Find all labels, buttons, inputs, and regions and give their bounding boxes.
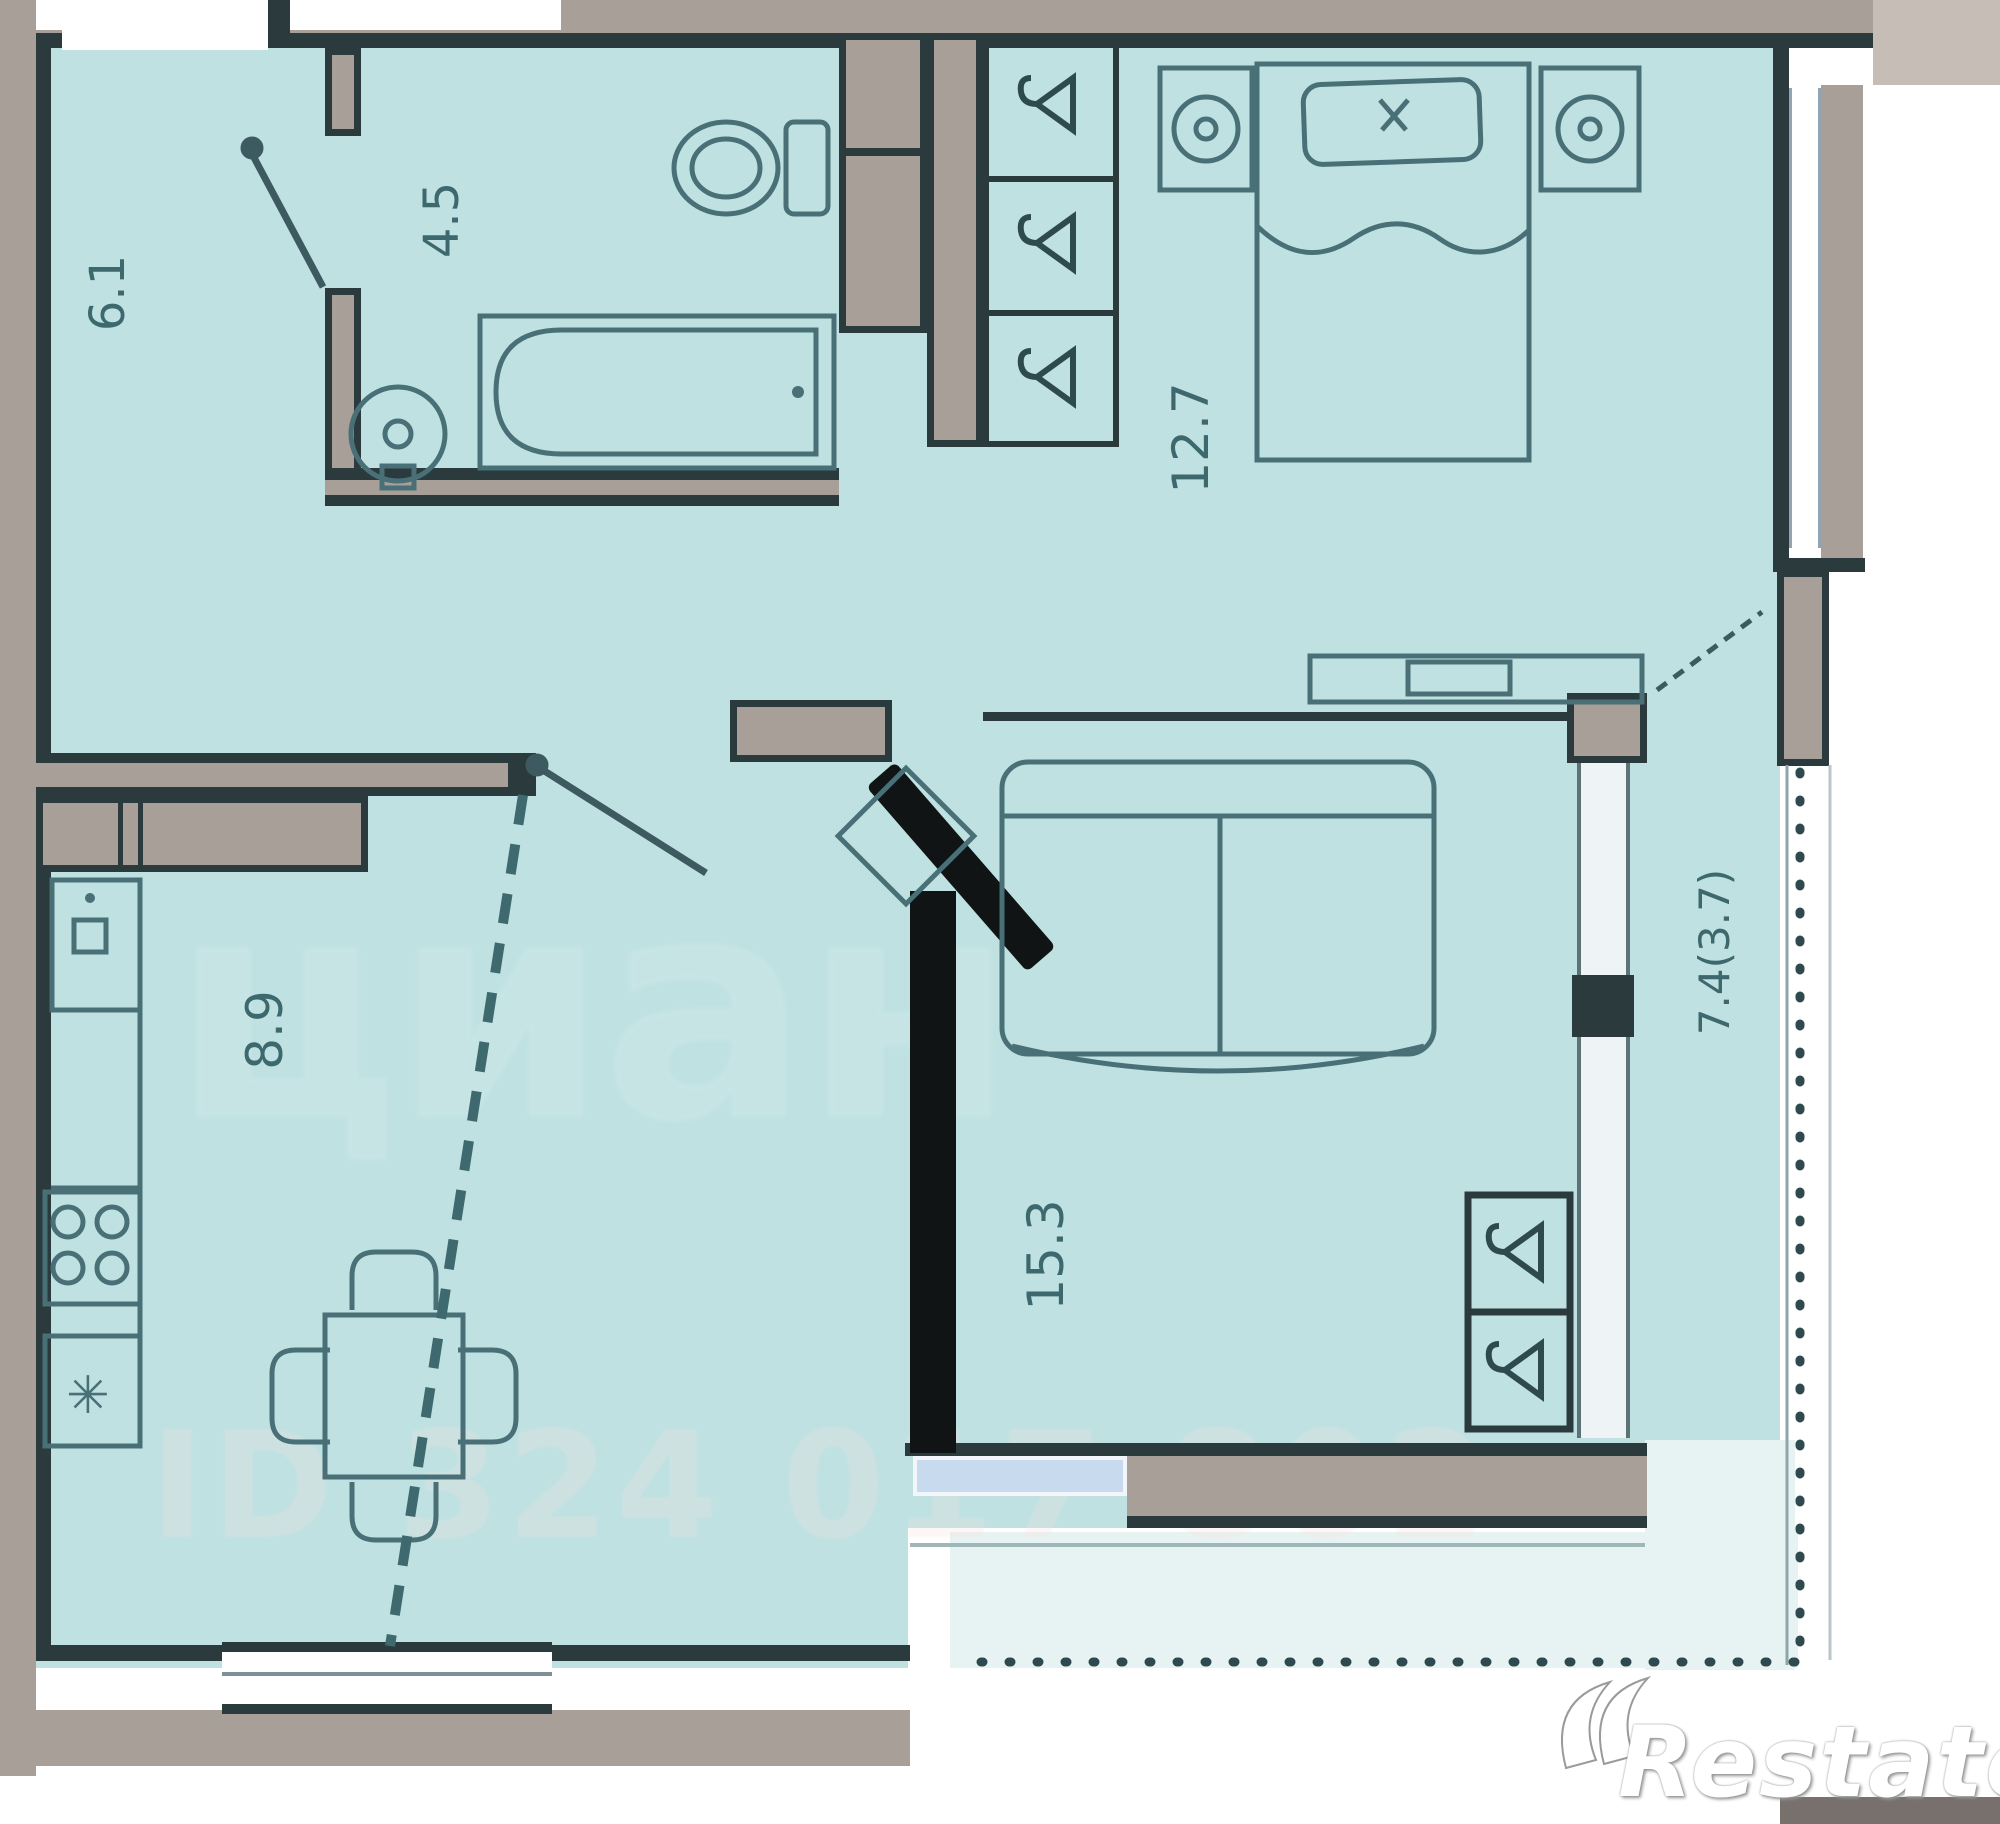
room-label-bathroom: 4.5 [382,160,502,280]
hanger-icon [1021,351,1073,403]
room-label-bedroom: 12.7 [1131,378,1251,498]
kitchen-counter [51,880,140,1448]
hanger-icon [1021,78,1073,130]
room-label-living: 15.3 [986,1195,1106,1315]
nightstand-right [1541,68,1639,190]
room-label-kitchen: 8.9 [205,970,325,1090]
floor-plan: циан ID 324 017 802 [0,0,2000,1824]
hanger-icon [1489,1226,1541,1278]
bathroom-sink [351,387,445,488]
bed [1257,64,1529,460]
room-label-hallway: 6.1 [48,233,168,353]
armchair [838,768,974,904]
balcony-door-swing [1657,612,1762,690]
hanger-icon [1021,217,1073,269]
freezer-icon: ✳ [66,1366,110,1426]
restate-logo-text: Restate [1618,1706,2000,1820]
tv-console [1310,656,1642,702]
stove [45,1192,140,1304]
toilet [674,122,828,214]
hanger-icon [1489,1344,1541,1396]
nightstand-left [1160,68,1252,190]
sofa [1002,762,1434,1071]
kitchen-door-swing [529,757,706,873]
dining-table [272,1252,516,1540]
living-room-wardrobe [1468,1195,1570,1429]
bathtub [480,316,834,468]
zone-divider-dashed [390,795,523,1646]
bathroom-door-swing [244,140,323,287]
room-label-balcony: 7.4(3.7) [1614,852,1814,1052]
